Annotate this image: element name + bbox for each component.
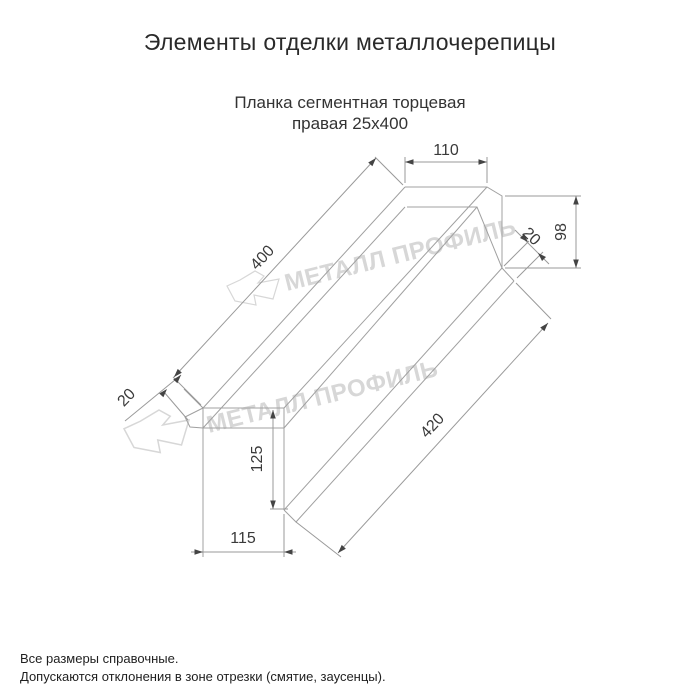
- dim-125-lines: [270, 410, 288, 509]
- footer-note-1: Все размеры справочные.: [20, 650, 386, 668]
- dim-115-arrow: [195, 549, 204, 555]
- dim-top-flange-width: 110: [405, 142, 487, 183]
- watermark-text: МЕТАЛЛ ПРОФИЛЬ: [282, 213, 519, 297]
- dim-left-hem: 20: [114, 373, 203, 421]
- dim-98-arrow: [573, 260, 579, 269]
- technical-drawing: МЕТАЛЛ ПРОФИЛЬ МЕТАЛЛ ПРОФИЛЬ 110 98: [0, 0, 700, 700]
- footer-note-2: Допускаются отклонения в зоне отрезки (с…: [20, 668, 386, 686]
- metall-profil-logo-icon: [227, 271, 279, 305]
- dim-420-lines: [296, 283, 551, 557]
- dim-98-label: 98: [553, 223, 570, 241]
- dim-20-left-label: 20: [114, 385, 139, 410]
- dim-110-arrow: [405, 159, 414, 165]
- watermark-layer: МЕТАЛЛ ПРОФИЛЬ МЕТАЛЛ ПРОФИЛЬ: [124, 213, 519, 452]
- dim-125-arrow: [270, 501, 276, 510]
- drawing-page: Элементы отделки металлочерепицы Планка …: [0, 0, 700, 700]
- metall-profil-logo-icon: [124, 410, 189, 453]
- footer-notes: Все размеры справочные. Допускаются откл…: [20, 650, 386, 686]
- dim-115-arrow: [284, 549, 293, 555]
- dim-bottom-width: 115: [191, 514, 296, 557]
- dim-115-label: 115: [230, 530, 256, 547]
- dim-98-arrow: [573, 196, 579, 205]
- dim-bottom-length: 420: [296, 283, 551, 557]
- dim-110-lines: [405, 157, 487, 183]
- dim-110-arrow: [479, 159, 488, 165]
- dim-110-label: 110: [433, 142, 459, 159]
- dim-125-label: 125: [249, 446, 266, 473]
- dim-20-right-label: 20: [519, 224, 544, 249]
